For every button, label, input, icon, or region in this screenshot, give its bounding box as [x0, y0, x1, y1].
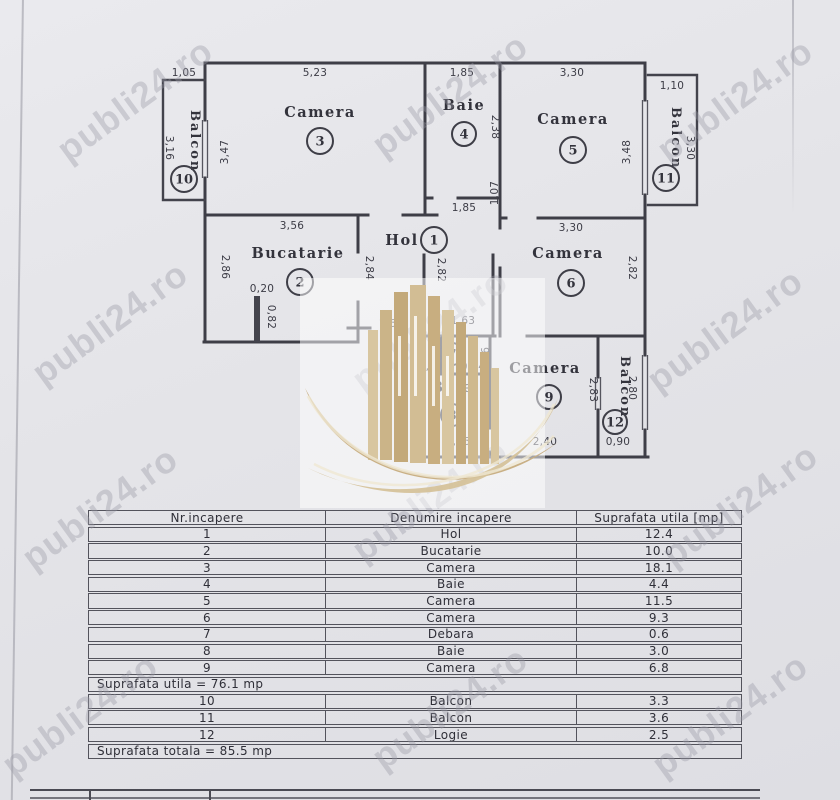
- cell-area: 4.4: [576, 578, 741, 591]
- cell-name: Balcon: [325, 711, 576, 724]
- cell-nr: 6: [89, 611, 325, 624]
- room-label-camera6: Camera: [532, 245, 604, 262]
- subtotal-text: Suprafata utila = 76.1 mp: [89, 678, 741, 691]
- cell-nr: 5: [89, 594, 325, 607]
- areas-table: Nr.incapere Denumire incapere Suprafata …: [88, 510, 742, 760]
- dim-balcon10-height: 3,16: [163, 136, 175, 161]
- table-row: 7 Debara 0.6: [88, 627, 742, 642]
- publi24-logo: [298, 276, 564, 518]
- cell-nr: 12: [89, 728, 325, 741]
- room-number: 6: [566, 277, 575, 292]
- header-nr-incapere: Nr.incapere: [89, 511, 325, 524]
- room-label-camera5: Camera: [537, 111, 609, 128]
- cell-area: 6.8: [576, 661, 741, 674]
- cell-name: Logie: [325, 728, 576, 741]
- bottom-table-fragment: [30, 789, 760, 791]
- table-row: 8 Baie 3.0: [88, 644, 742, 659]
- bottom-table-fragment: [30, 797, 760, 799]
- dim-camera3-height: 3,47: [219, 140, 231, 165]
- room-number: 11: [657, 172, 675, 187]
- cell-name: Camera: [325, 561, 576, 574]
- room-number: 12: [606, 416, 624, 431]
- balcony-walls: [163, 75, 697, 205]
- dim-camera9-height: 2,83: [587, 378, 599, 403]
- cell-nr: 1: [89, 528, 325, 541]
- dim-bucatarie-width: 3,56: [280, 220, 305, 232]
- cell-name: Hol: [325, 528, 576, 541]
- cell-area: 2.5: [576, 728, 741, 741]
- cell-nr: 4: [89, 578, 325, 591]
- room-label-baie4: Baie: [443, 97, 485, 114]
- table-row: 3 Camera 18.1: [88, 560, 742, 575]
- room-label-balcon11: Balcon: [668, 107, 683, 169]
- cell-area: 3.6: [576, 711, 741, 724]
- cell-nr: 9: [89, 661, 325, 674]
- cell-name: Baie: [325, 578, 576, 591]
- cell-area: 0.6: [576, 628, 741, 641]
- total-row: Suprafata totala = 85.5 mp: [88, 744, 742, 759]
- table-row: 12 Logie 2.5: [88, 727, 742, 742]
- cell-name: Camera: [325, 611, 576, 624]
- cell-nr: 2: [89, 544, 325, 557]
- cell-nr: 7: [89, 628, 325, 641]
- dim-stub-height: 0,82: [265, 305, 277, 330]
- room-number: 5: [568, 144, 577, 159]
- scanned-floor-plan-page: Camera 3 Baie 4 Camera 5 Bucatarie 2 Hol…: [0, 0, 840, 800]
- cell-area: 10.0: [576, 544, 741, 557]
- dim-balcon12-width: 0,90: [606, 436, 631, 448]
- table-row: 6 Camera 9.3: [88, 610, 742, 625]
- dim-balcon11-height: 3,30: [684, 136, 696, 161]
- cell-area: 12.4: [576, 528, 741, 541]
- table-row: 5 Camera 11.5: [88, 593, 742, 608]
- dim-balcon11-width: 1,10: [660, 80, 685, 92]
- dim-bucatarie-height: 2,86: [219, 255, 231, 280]
- dim-balcon12-height: 2,80: [626, 376, 638, 401]
- cell-area: 11.5: [576, 594, 741, 607]
- room-label-camera3: Camera: [284, 104, 356, 121]
- room-label-balcon10: Balcon: [187, 110, 202, 172]
- dim-camera6-height: 2,82: [626, 256, 638, 281]
- bottom-table-fragment: [89, 789, 91, 800]
- cell-nr: 8: [89, 645, 325, 658]
- dim-stub-width: 0,20: [250, 283, 275, 295]
- kitchen-stub-wall: [254, 296, 260, 342]
- dim-nisa: 1,07: [489, 181, 501, 206]
- cell-area: 3.0: [576, 645, 741, 658]
- cell-name: Debara: [325, 628, 576, 641]
- header-suprafata: Suprafata utila [mp]: [576, 511, 741, 524]
- bottom-table-fragment: [209, 789, 211, 800]
- cell-area: 18.1: [576, 561, 741, 574]
- total-text: Suprafata totala = 85.5 mp: [89, 745, 741, 758]
- room-number: 3: [315, 135, 324, 150]
- cell-nr: 10: [89, 695, 325, 708]
- dim-camera3-width: 5,23: [303, 67, 328, 79]
- table-row: 4 Baie 4.4: [88, 577, 742, 592]
- cell-name: Balcon: [325, 695, 576, 708]
- room-label-hol: Hol: [385, 232, 418, 249]
- cell-name: Camera: [325, 594, 576, 607]
- dim-baie4-height: 2,38: [489, 115, 501, 140]
- dim-balcon10-width: 1,05: [172, 67, 197, 79]
- room-number: 10: [175, 173, 193, 188]
- table-row: 11 Balcon 3.6: [88, 710, 742, 725]
- room-label-bucatarie: Bucatarie: [252, 245, 345, 262]
- dim-baie4-width: 1,85: [450, 67, 475, 79]
- dim-camera5-bottom: 3,30: [559, 222, 584, 234]
- cell-name: Camera: [325, 661, 576, 674]
- room-number: 4: [459, 128, 468, 143]
- dim-camera5-height: 3,48: [621, 140, 633, 165]
- subtotal-row: Suprafata utila = 76.1 mp: [88, 677, 742, 692]
- table-row: 1 Hol 12.4: [88, 527, 742, 542]
- cell-name: Bucatarie: [325, 544, 576, 557]
- cell-name: Baie: [325, 645, 576, 658]
- dim-hol-opening: 1,85: [452, 202, 477, 214]
- cell-nr: 3: [89, 561, 325, 574]
- table-row: 10 Balcon 3.3: [88, 694, 742, 709]
- dim-camera5-width: 3,30: [560, 67, 585, 79]
- cell-nr: 11: [89, 711, 325, 724]
- table-row: 9 Camera 6.8: [88, 660, 742, 675]
- table-row: 2 Bucatarie 10.0: [88, 543, 742, 558]
- cell-area: 9.3: [576, 611, 741, 624]
- room-number: 1: [429, 234, 438, 249]
- cell-area: 3.3: [576, 695, 741, 708]
